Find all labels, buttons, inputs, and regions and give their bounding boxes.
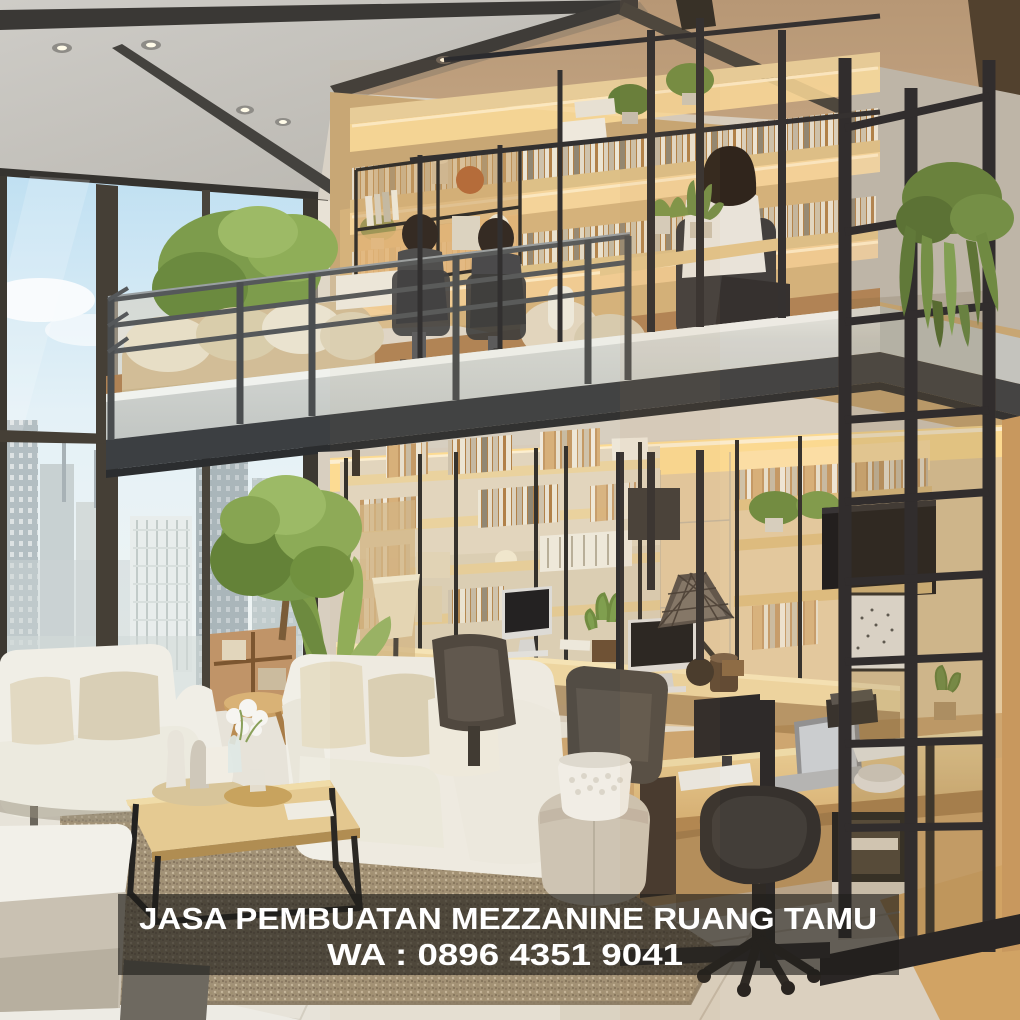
svg-text:WA : 0896 4351 9041: WA : 0896 4351 9041 [327, 937, 683, 972]
svg-text:JASA PEMBUATAN MEZZANINE RUANG: JASA PEMBUATAN MEZZANINE RUANG TAMU [139, 901, 877, 936]
